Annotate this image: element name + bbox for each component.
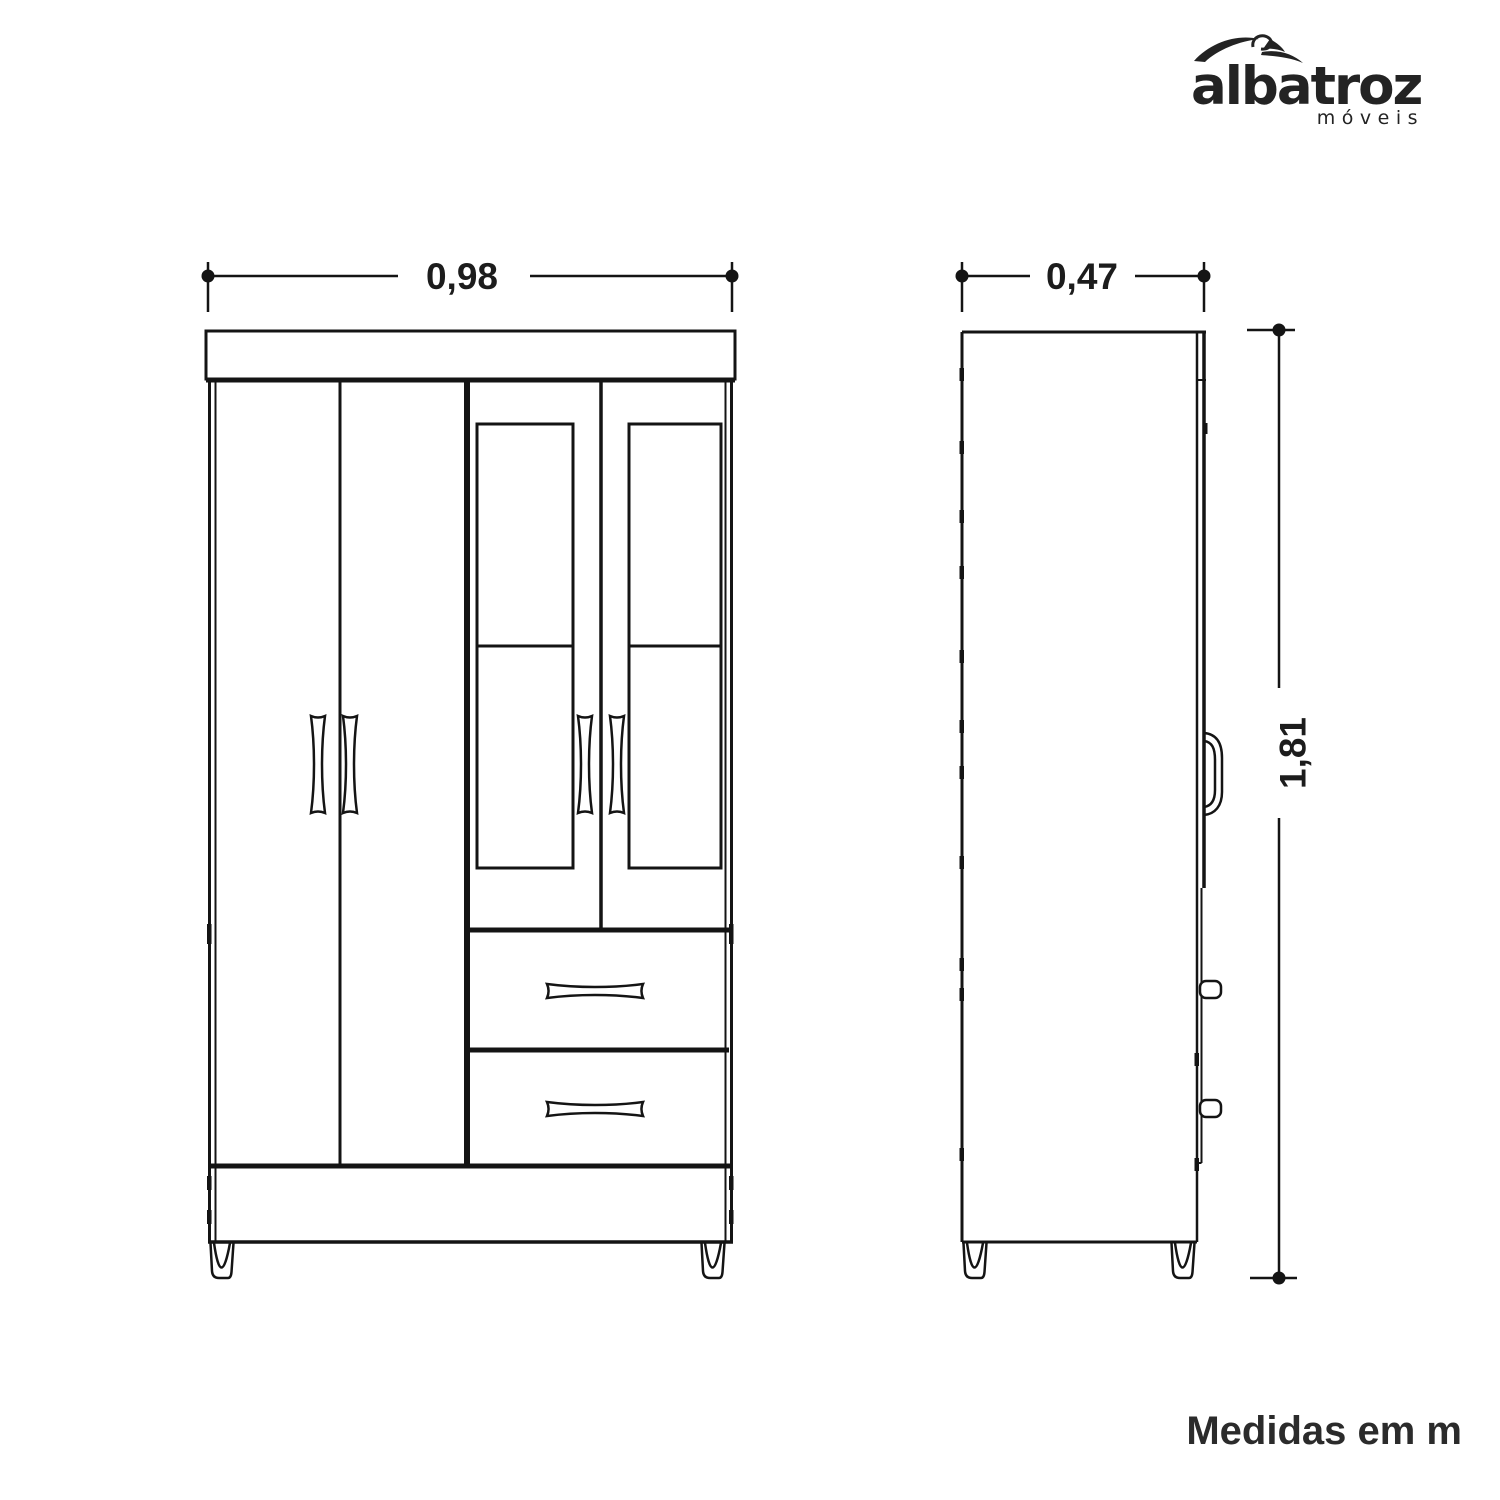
technical-drawing-sheet: albatroz móveis <box>0 0 1500 1500</box>
width-dimension-label: 0,98 <box>426 256 498 297</box>
dimension-dot <box>1273 324 1286 337</box>
door-handle <box>578 716 592 813</box>
dimension-dot <box>1273 1272 1286 1285</box>
side-drawer-knob <box>1200 1100 1221 1117</box>
foot-front-right <box>702 1243 725 1278</box>
foot-notch <box>1175 1243 1191 1268</box>
wardrobe-side-view <box>960 332 1223 1278</box>
door-handle <box>610 716 624 813</box>
side-door-handle-profile <box>1204 733 1222 815</box>
foot-notch <box>967 1243 983 1268</box>
height-dimension: 1,81 <box>1247 324 1314 1285</box>
side-fitting-marks <box>960 368 1200 1171</box>
crown-panel <box>206 331 735 379</box>
side-drawer-knob <box>1200 981 1221 998</box>
foot-front-left <box>211 1243 234 1278</box>
drawer-handle <box>547 1102 643 1116</box>
foot-side-front <box>1172 1243 1195 1278</box>
drawer-handle <box>547 984 643 998</box>
edge-fitting-marks <box>207 924 734 1224</box>
foot-side-back <box>964 1243 987 1278</box>
door-handle <box>311 716 325 813</box>
depth-dimension-label: 0,47 <box>1046 256 1118 297</box>
foot-notch <box>705 1243 721 1268</box>
height-dimension-label: 1,81 <box>1273 717 1314 789</box>
dimension-dot <box>1198 270 1211 283</box>
units-note: Medidas em m <box>1186 1409 1462 1453</box>
dimension-dot <box>202 270 215 283</box>
depth-dimension: 0,47 <box>956 256 1211 312</box>
dimension-dot <box>726 270 739 283</box>
dimension-dot <box>956 270 969 283</box>
brand-subtitle: móveis <box>1317 107 1424 129</box>
brand-logo: albatroz móveis <box>1191 36 1424 129</box>
wardrobe-front-view <box>206 331 735 1278</box>
door-handle <box>343 716 357 813</box>
foot-notch <box>214 1243 230 1268</box>
width-dimension: 0,98 <box>202 256 739 312</box>
